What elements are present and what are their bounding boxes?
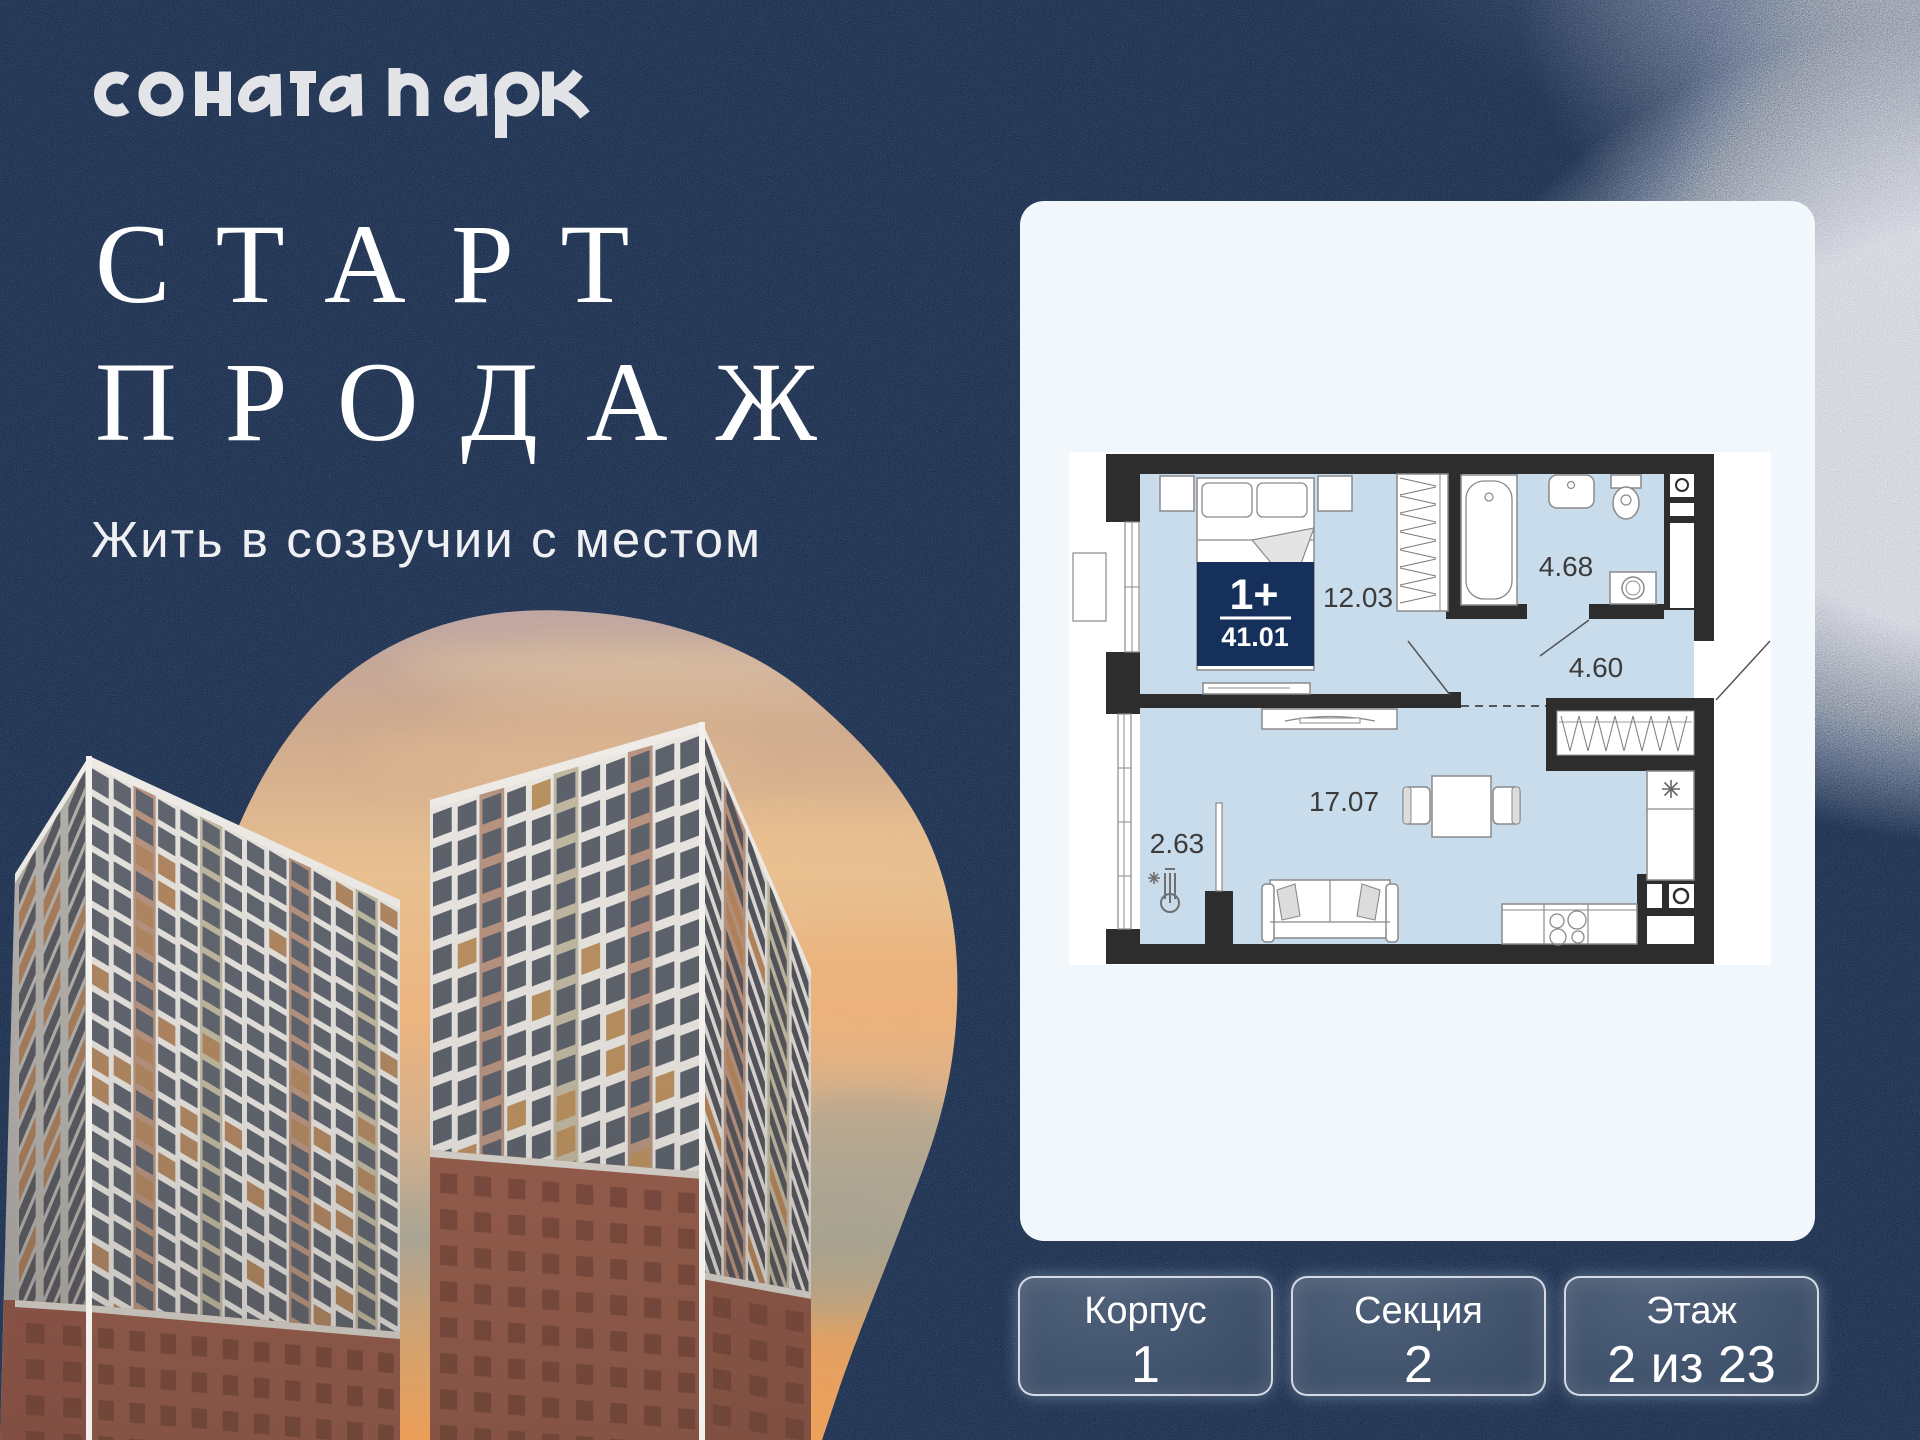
svg-text:41.01: 41.01 xyxy=(1221,622,1289,652)
svg-text:4.68: 4.68 xyxy=(1539,551,1594,582)
svg-text:12.03: 12.03 xyxy=(1323,582,1393,613)
svg-text:1+: 1+ xyxy=(1229,571,1278,619)
svg-text:17.07: 17.07 xyxy=(1309,786,1379,817)
svg-text:4.60: 4.60 xyxy=(1569,652,1624,683)
svg-text:2.63: 2.63 xyxy=(1150,828,1205,859)
